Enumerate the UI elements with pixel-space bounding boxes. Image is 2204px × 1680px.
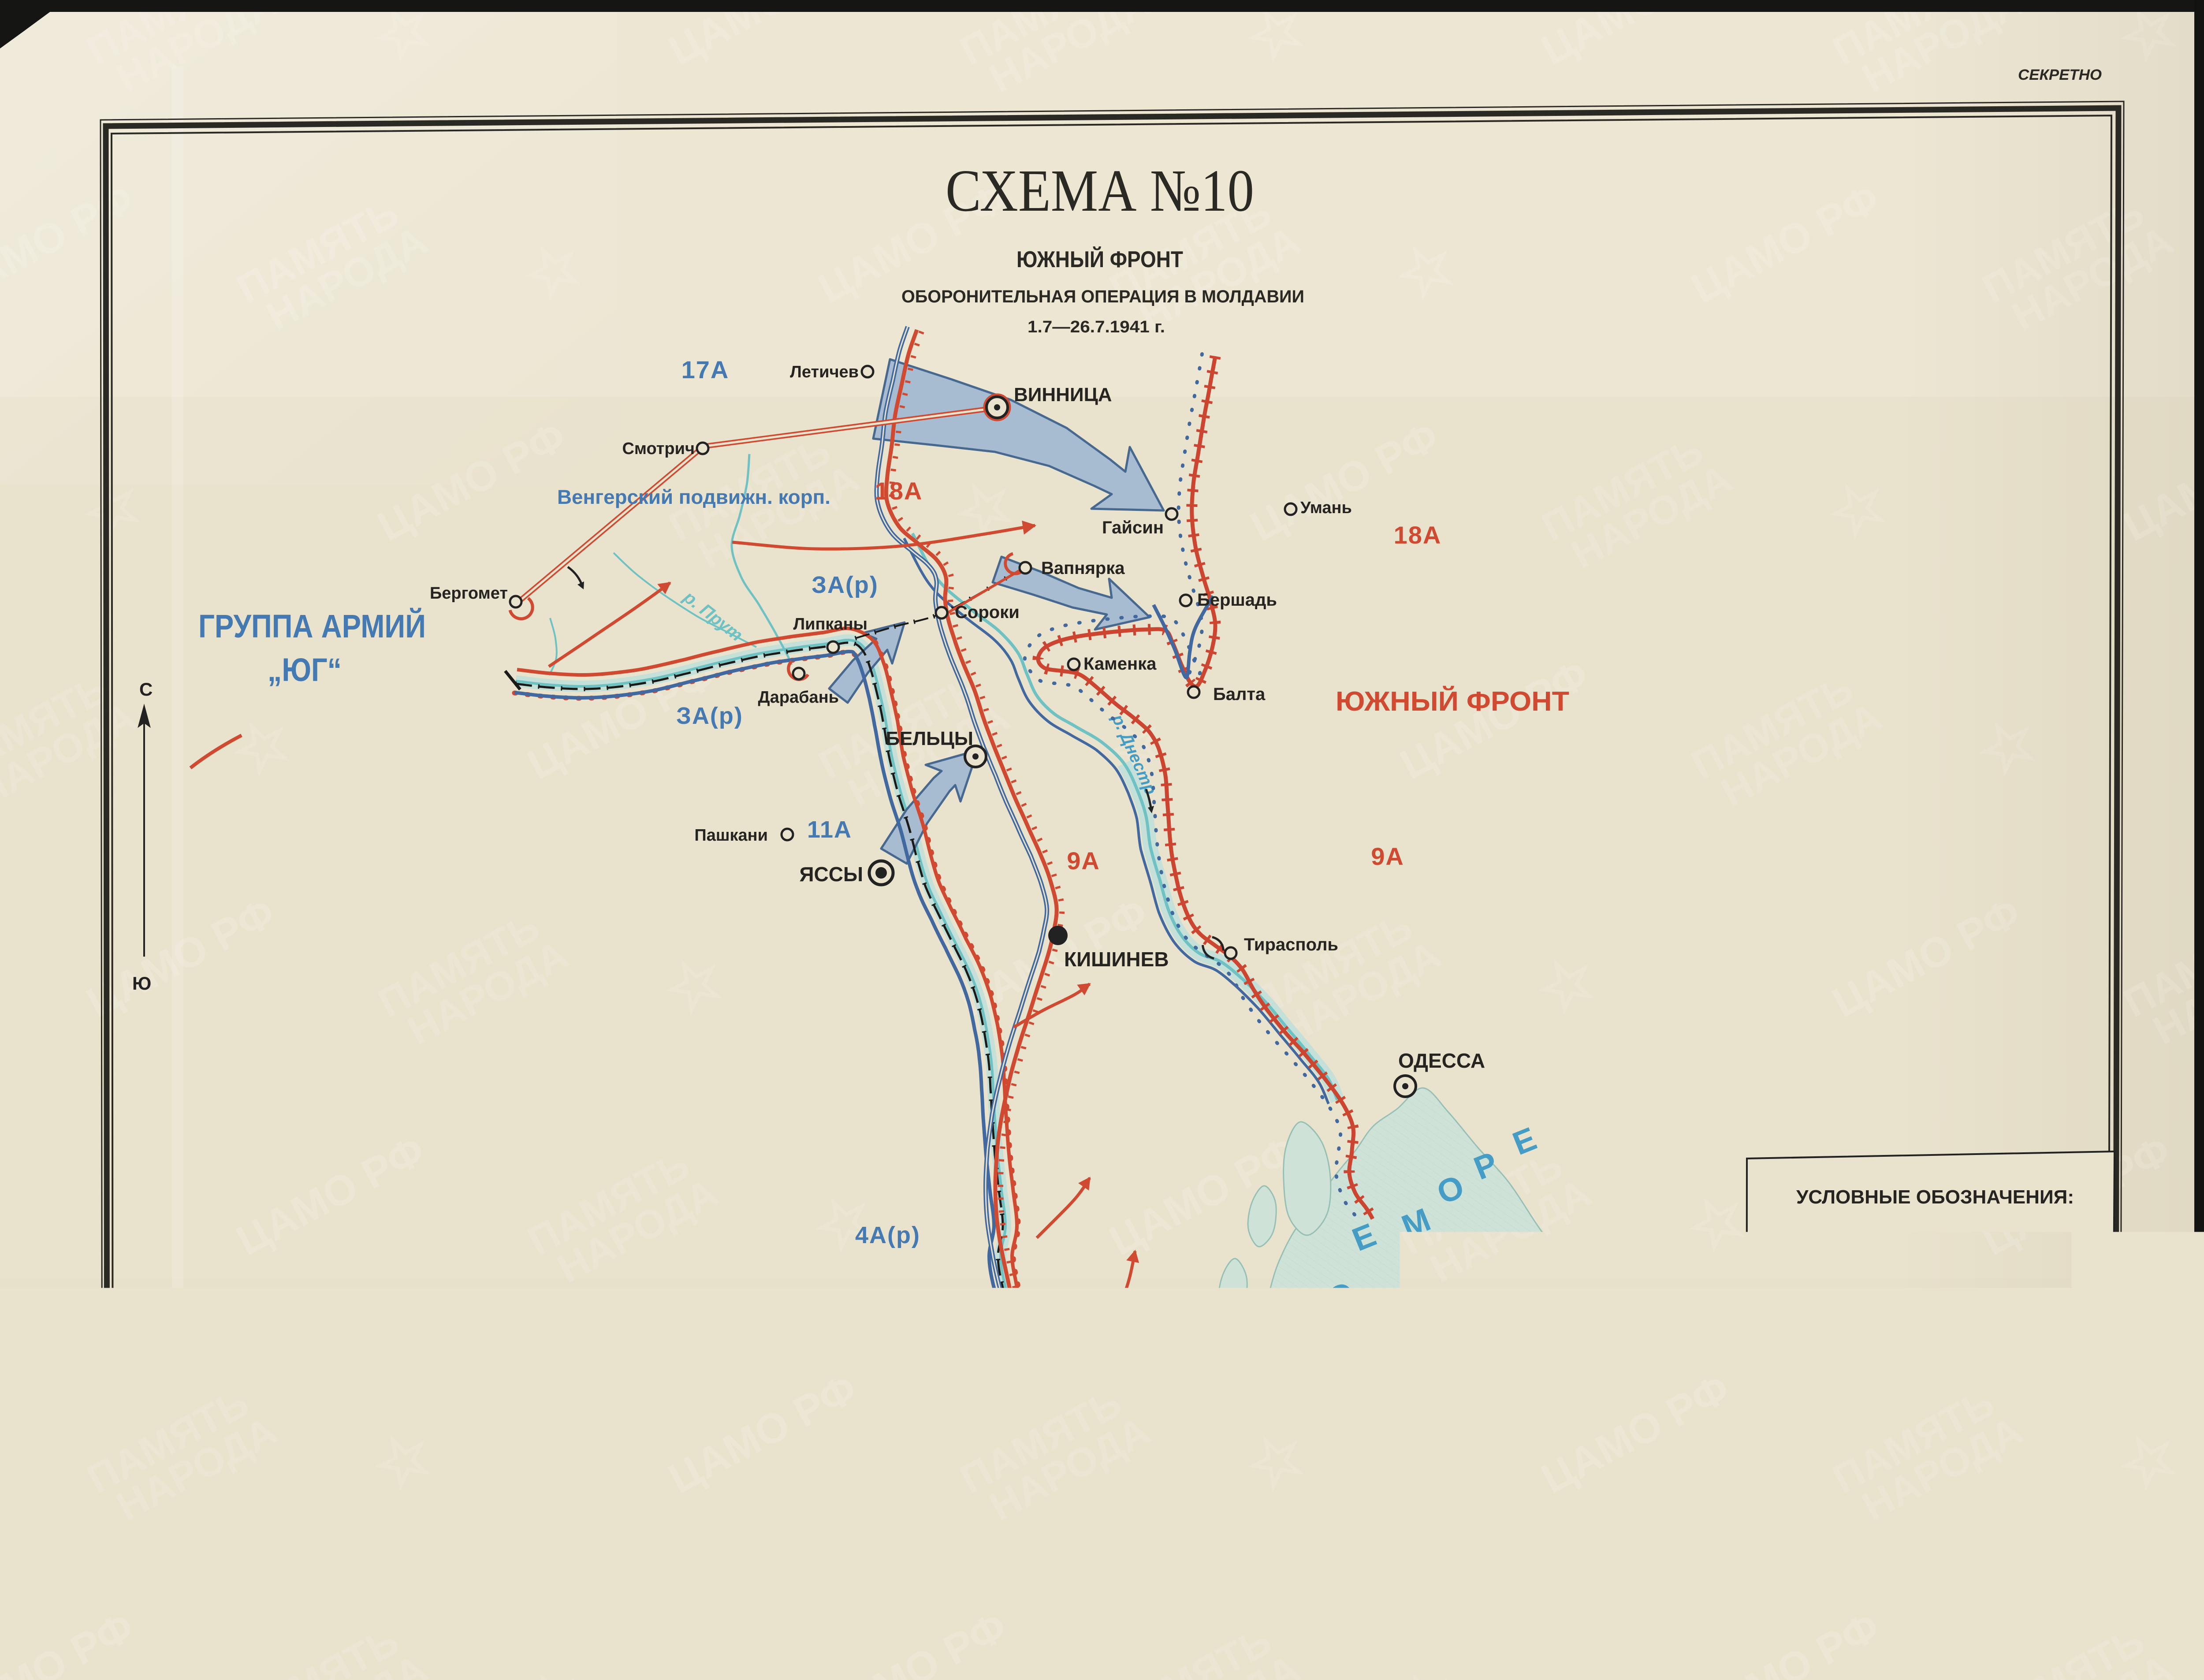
svg-text:9А: 9А <box>1371 842 1404 870</box>
svg-text:СХЕМА №10: СХЕМА №10 <box>946 158 1254 224</box>
svg-text:ЗА(р): ЗА(р) <box>676 703 743 729</box>
svg-text:С: С <box>139 679 153 700</box>
svg-text:Умань: Умань <box>1300 499 1352 517</box>
svg-text:Балта: Балта <box>1213 685 1266 704</box>
svg-text:Масштаб 1:2500 000: Масштаб 1:2500 000 <box>166 1509 400 1538</box>
svg-text:ВИННИЦА: ВИННИЦА <box>1014 384 1112 406</box>
svg-text:БЕЛЬЦЫ: БЕЛЬЦЫ <box>886 728 973 749</box>
svg-text:Каменка: Каменка <box>1083 654 1157 674</box>
svg-text:ЮЖНЫЙ ФРОНТ: ЮЖНЫЙ ФРОНТ <box>1336 686 1569 717</box>
svg-text:Сороки: Сороки <box>955 603 1020 622</box>
svg-text:11А: 11А <box>807 816 852 843</box>
svg-text:Вапнярка: Вапнярка <box>1041 559 1125 578</box>
svg-text:Венгерский подвижн. корп.: Венгерский подвижн. корп. <box>557 486 830 508</box>
svg-text:Дарабань: Дарабань <box>758 688 839 707</box>
svg-text:ОБОРОНИТЕЛЬНАЯ ОПЕРАЦИЯ В МОЛД: ОБОРОНИТЕЛЬНАЯ ОПЕРАЦИЯ В МОЛДАВИИ <box>901 287 1304 306</box>
svg-text:Бергомет: Бергомет <box>430 584 508 603</box>
svg-text:Пашкани: Пашкани <box>694 826 768 845</box>
svg-text:ОДЕССА: ОДЕССА <box>1398 1049 1485 1072</box>
svg-text:Гайсин: Гайсин <box>1102 518 1164 537</box>
svg-text:Килия: Килия <box>1156 1285 1210 1304</box>
svg-text:Положение на 26.7:41 г.: Положение на 26.7:41 г. <box>1850 1397 2064 1418</box>
svg-text:Смотрич: Смотрич <box>622 440 695 458</box>
svg-text:Положение на 11 .7.41 г.: Положение на 11 .7.41 г. <box>1850 1325 2067 1346</box>
svg-text:ЗА(р): ЗА(р) <box>812 572 879 598</box>
svg-text:Тирасполь: Тирасполь <box>1244 935 1338 954</box>
svg-text:Положение на 1.7.41 г.: Положение на 1.7.41 г. <box>1850 1250 2053 1271</box>
svg-text:Направления ударов: Направления ударов <box>1850 1475 2044 1496</box>
svg-text:Бершадь: Бершадь <box>1197 590 1277 610</box>
svg-text:Ю: Ю <box>132 973 151 994</box>
svg-text:Рени: Рени <box>1025 1308 1068 1327</box>
svg-text:17А: 17А <box>681 356 730 384</box>
svg-text:ЯССЫ: ЯССЫ <box>799 863 863 886</box>
svg-text:16: 16 <box>1095 1596 1116 1619</box>
svg-text:9А: 9А <box>1067 847 1100 875</box>
svg-text:18А: 18А <box>875 477 923 505</box>
svg-text:4А(р): 4А(р) <box>855 1222 920 1248</box>
svg-text:Липканы: Липканы <box>793 615 867 633</box>
svg-text:1.7—26.7.1941 г.: 1.7—26.7.1941 г. <box>1028 318 1165 336</box>
svg-text:Летичев: Летичев <box>790 363 859 381</box>
svg-text:ГРУППА АРМИЙ: ГРУППА АРМИЙ <box>198 607 426 644</box>
svg-text:КИШИНЕВ: КИШИНЕВ <box>1064 948 1169 971</box>
svg-text:СЕКРЕТНО: СЕКРЕТНО <box>2018 67 2102 83</box>
svg-text:18А: 18А <box>1394 521 1442 549</box>
svg-text:„ЮГ“: „ЮГ“ <box>268 652 342 688</box>
svg-text:ЮЖНЫЙ ФРОНТ: ЮЖНЫЙ ФРОНТ <box>1016 246 1183 272</box>
svg-text:УСЛОВНЫЕ ОБОЗНАЧЕНИЯ:: УСЛОВНЫЕ ОБОЗНАЧЕНИЯ: <box>1796 1186 2074 1208</box>
